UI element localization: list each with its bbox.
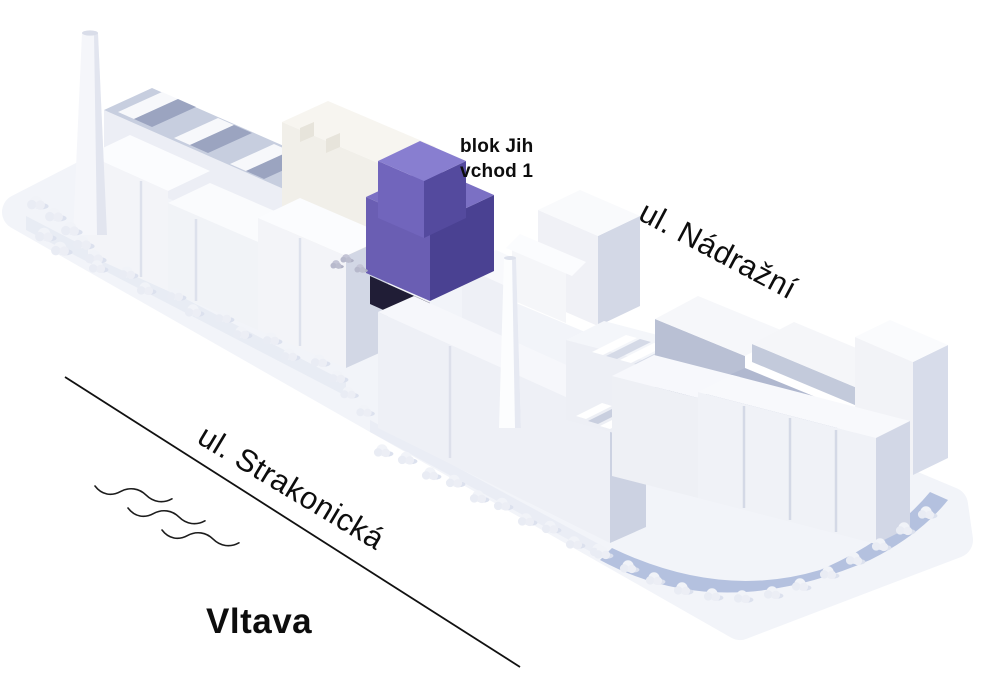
chimney-cap xyxy=(82,30,98,35)
chimney-large xyxy=(73,30,107,235)
highlight-building-label: blok Jih vchod 1 xyxy=(460,134,533,184)
tower-side xyxy=(913,345,948,475)
river-label-vltava: Vltava xyxy=(206,602,312,642)
wave-icon xyxy=(127,506,205,526)
wave-icon xyxy=(94,484,172,504)
tree xyxy=(374,444,393,457)
chimney-thin-cap xyxy=(504,256,516,260)
highlight-building-label-line2: vchod 1 xyxy=(460,159,533,184)
site-plan: blok Jih vchod 1 ul. Nádražní ul. Strako… xyxy=(0,0,988,685)
river-waves xyxy=(94,484,239,548)
site-plan-illustration xyxy=(0,0,988,685)
wave-icon xyxy=(161,528,239,548)
middle-back-buildings xyxy=(506,190,640,326)
highlight-building-label-line1: blok Jih xyxy=(460,134,533,159)
